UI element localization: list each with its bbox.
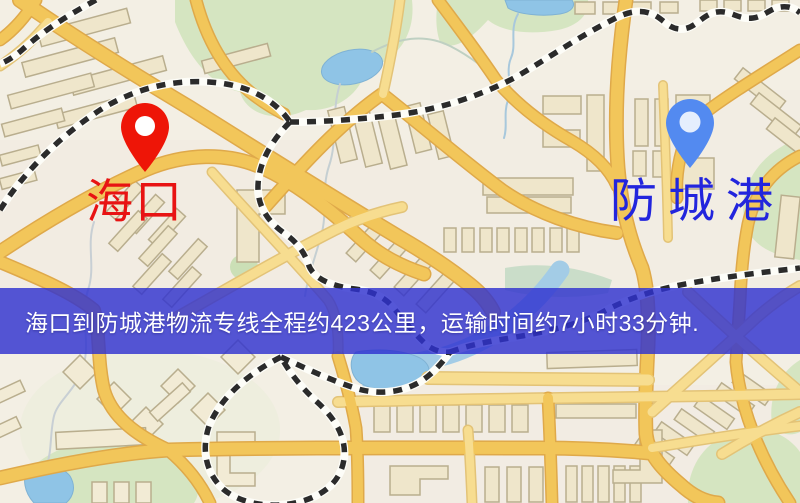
destination-label: 防城港	[610, 178, 784, 225]
map-image	[0, 0, 800, 503]
route-info-text: 海口到防城港物流专线全程约423公里，运输时间约7小时33分钟.	[0, 304, 699, 338]
map-container: 海口 防城港 海口到防城港物流专线全程约423公里，运输时间约7小时33分钟.	[0, 0, 800, 503]
route-info-banner: 海口到防城港物流专线全程约423公里，运输时间约7小时33分钟.	[0, 288, 800, 354]
origin-label: 海口	[86, 179, 184, 226]
